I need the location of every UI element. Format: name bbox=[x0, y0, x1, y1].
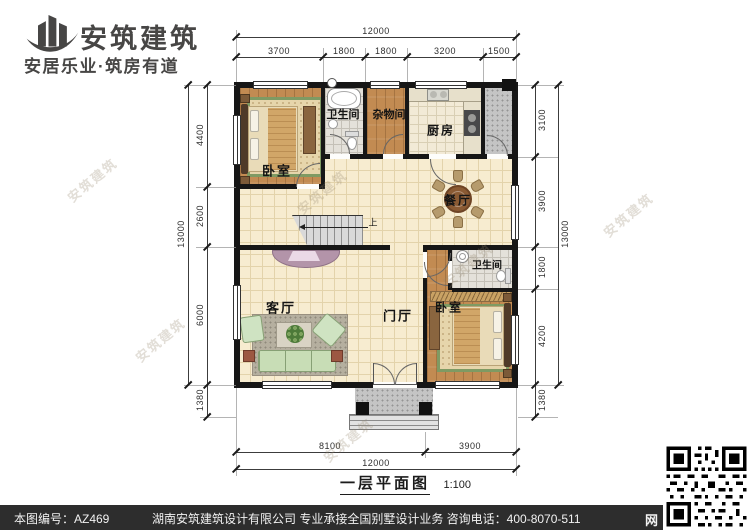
armchair bbox=[239, 315, 264, 344]
dim-right-seg: 1380 bbox=[537, 380, 547, 420]
watermark: 安筑建筑 bbox=[63, 153, 121, 206]
side-table bbox=[243, 350, 255, 362]
wall-bed1-bath1 bbox=[321, 85, 325, 188]
bed-blanket bbox=[454, 308, 480, 364]
dim-left-seg: 2600 bbox=[195, 196, 205, 236]
label-foyer: 门厅 bbox=[383, 306, 413, 325]
dim-left-total: 13000 bbox=[176, 214, 186, 254]
pillow bbox=[250, 138, 259, 160]
wall-storage-kitchen bbox=[405, 85, 409, 159]
wall-mid-right bbox=[423, 245, 518, 250]
extension-line bbox=[518, 289, 558, 290]
dim-line-bottom-segments bbox=[236, 452, 516, 453]
dim-line-left-total bbox=[188, 85, 189, 385]
plan-title-block: 一层平面图 1:100 bbox=[340, 472, 471, 493]
watermark: 安筑建筑 bbox=[599, 188, 657, 241]
brand-slogan: 安居乐业·筑房有道 bbox=[24, 52, 179, 77]
sheet-number: 本图编号：AZ469 bbox=[14, 510, 109, 527]
dim-left-seg: 4400 bbox=[195, 115, 205, 155]
door-leaf-line bbox=[373, 363, 374, 385]
dim-line-bottom-total bbox=[236, 469, 516, 470]
window-bedroom-bottom-right bbox=[511, 315, 519, 365]
toilet bbox=[496, 270, 506, 282]
door-opening bbox=[448, 261, 452, 283]
extension-line bbox=[196, 187, 236, 188]
window-bedroom-top-left bbox=[233, 115, 241, 165]
bed-headboard bbox=[241, 104, 248, 174]
extension-line bbox=[184, 385, 236, 386]
extension-line bbox=[236, 388, 237, 476]
qr-code bbox=[663, 443, 750, 530]
label-storage: 杂物间 bbox=[373, 106, 406, 122]
brand-name: 安筑建筑 bbox=[80, 17, 200, 56]
dim-left-seg: 1380 bbox=[195, 380, 205, 420]
stairs-direction-line bbox=[302, 227, 368, 228]
label-stairs-up: 上 bbox=[368, 216, 377, 229]
watermark: 安筑建筑 bbox=[131, 313, 189, 366]
door-leaf-line bbox=[416, 363, 417, 385]
window-living-left bbox=[233, 285, 241, 340]
dim-line-right-segments bbox=[535, 85, 536, 417]
extension-line bbox=[518, 157, 558, 158]
label-living: 客厅 bbox=[266, 298, 296, 317]
dim-right-seg: 1800 bbox=[537, 247, 547, 287]
window-living-bottom bbox=[262, 381, 332, 389]
dim-line-left-segments bbox=[207, 85, 208, 417]
dim-line-top-segments bbox=[236, 57, 516, 58]
extension-line bbox=[516, 388, 517, 476]
pillow bbox=[493, 311, 502, 333]
pillow bbox=[493, 338, 502, 360]
vent-bathroom-top bbox=[327, 78, 337, 88]
wall-bath2-bottom bbox=[452, 288, 518, 292]
wall-bath1-storage bbox=[363, 85, 367, 157]
dim-bottom-seg: 3900 bbox=[450, 441, 490, 451]
entrance-steps bbox=[349, 414, 439, 430]
window-bedroom-bottom bbox=[435, 381, 500, 389]
dim-top-total: 12000 bbox=[356, 26, 396, 36]
sink-basin bbox=[440, 91, 447, 98]
label-bathroom-right: 卫生间 bbox=[472, 257, 502, 272]
nightstand bbox=[240, 94, 250, 103]
dresser-bedroom-top bbox=[303, 106, 316, 154]
label-bathroom-top: 卫生间 bbox=[327, 106, 360, 122]
floor-plan-sheet: 安筑建筑 安居乐业·筑房有道 bbox=[0, 0, 750, 530]
plant bbox=[286, 325, 304, 343]
porch-column-right bbox=[419, 402, 432, 415]
dim-bottom-seg: 8100 bbox=[310, 441, 350, 451]
dim-right-seg: 3900 bbox=[537, 181, 547, 221]
dim-top-seg: 3700 bbox=[259, 46, 299, 56]
door-opening bbox=[383, 154, 403, 159]
burner bbox=[468, 114, 476, 122]
dim-top-seg: 3200 bbox=[425, 46, 465, 56]
dim-right-total: 13000 bbox=[560, 214, 570, 254]
label-dining: 餐厅 bbox=[444, 192, 472, 209]
label-bedroom-top: 卧室 bbox=[262, 161, 292, 180]
dim-right-seg: 3100 bbox=[537, 100, 547, 140]
net-char: 网 bbox=[645, 510, 658, 529]
window-dining-right bbox=[511, 185, 519, 240]
extension-line bbox=[184, 85, 236, 86]
window-kitchen bbox=[415, 81, 467, 89]
dim-line-right-total bbox=[558, 85, 559, 385]
nightstand bbox=[503, 293, 512, 302]
extension-line bbox=[196, 247, 236, 248]
footer-bar: 本图编号：AZ469 湖南安筑建筑设计有限公司 专业承接全国别墅设计业务 咨询电… bbox=[0, 505, 750, 530]
nightstand bbox=[503, 369, 512, 378]
pillow bbox=[250, 110, 259, 132]
sink-basin bbox=[430, 91, 437, 98]
dim-right-seg: 4200 bbox=[537, 316, 547, 356]
dim-top-seg: 1800 bbox=[324, 46, 364, 56]
wall-mid-left bbox=[236, 245, 390, 250]
bed-headboard bbox=[504, 303, 511, 367]
window-storage bbox=[370, 81, 400, 89]
bathtub-basin bbox=[331, 91, 357, 106]
sofa bbox=[258, 350, 336, 372]
dim-top-seg: 1800 bbox=[366, 46, 406, 56]
corner-column bbox=[502, 79, 516, 91]
company-line: 湖南安筑建筑设计有限公司 专业承接全国别墅设计业务 咨询电话：400-8070-… bbox=[152, 510, 581, 527]
stairs-arrow bbox=[299, 224, 305, 230]
porch-column-left bbox=[356, 402, 369, 415]
dim-left-seg: 6000 bbox=[195, 295, 205, 335]
dim-bottom-total: 12000 bbox=[356, 458, 396, 468]
plan-title: 一层平面图 bbox=[340, 475, 430, 495]
dim-top-seg: 1500 bbox=[479, 46, 519, 56]
side-table bbox=[331, 350, 343, 362]
label-kitchen: 厨房 bbox=[427, 122, 455, 139]
wall-kitchen-porch bbox=[481, 85, 485, 159]
dining-chair bbox=[453, 216, 463, 228]
dim-line-top-total bbox=[236, 37, 516, 38]
extension-line bbox=[425, 432, 426, 458]
label-bedroom-bottom: 卧室 bbox=[435, 299, 463, 316]
washer-drum bbox=[459, 253, 466, 260]
decor-arch-inner bbox=[288, 251, 320, 261]
window-bedroom-top bbox=[253, 81, 308, 89]
door-opening bbox=[330, 154, 350, 159]
plan-scale: 1:100 bbox=[443, 479, 471, 491]
burner bbox=[468, 125, 476, 133]
